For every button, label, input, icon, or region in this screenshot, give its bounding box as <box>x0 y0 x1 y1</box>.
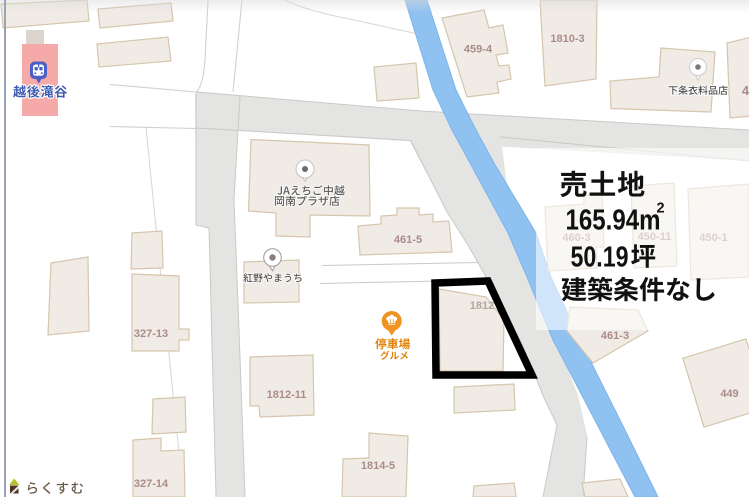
svg-text:4: 4 <box>742 83 749 98</box>
svg-text:327-13: 327-13 <box>134 328 168 340</box>
svg-text:1814-5: 1814-5 <box>361 460 395 472</box>
svg-text:461-3: 461-3 <box>601 330 629 342</box>
svg-text:1810-3: 1810-3 <box>550 33 584 45</box>
svg-text:1812: 1812 <box>470 300 494 312</box>
svg-text:327-14: 327-14 <box>134 478 169 490</box>
svg-text:461-5: 461-5 <box>394 234 422 246</box>
svg-text:449: 449 <box>720 388 738 400</box>
svg-text:1812-11: 1812-11 <box>267 389 307 401</box>
svg-text:459-4: 459-4 <box>464 44 493 56</box>
svg-text:165.94m: 165.94m <box>566 205 661 237</box>
svg-text:50.19: 50.19 <box>571 242 629 274</box>
svg-text:2: 2 <box>657 201 665 217</box>
